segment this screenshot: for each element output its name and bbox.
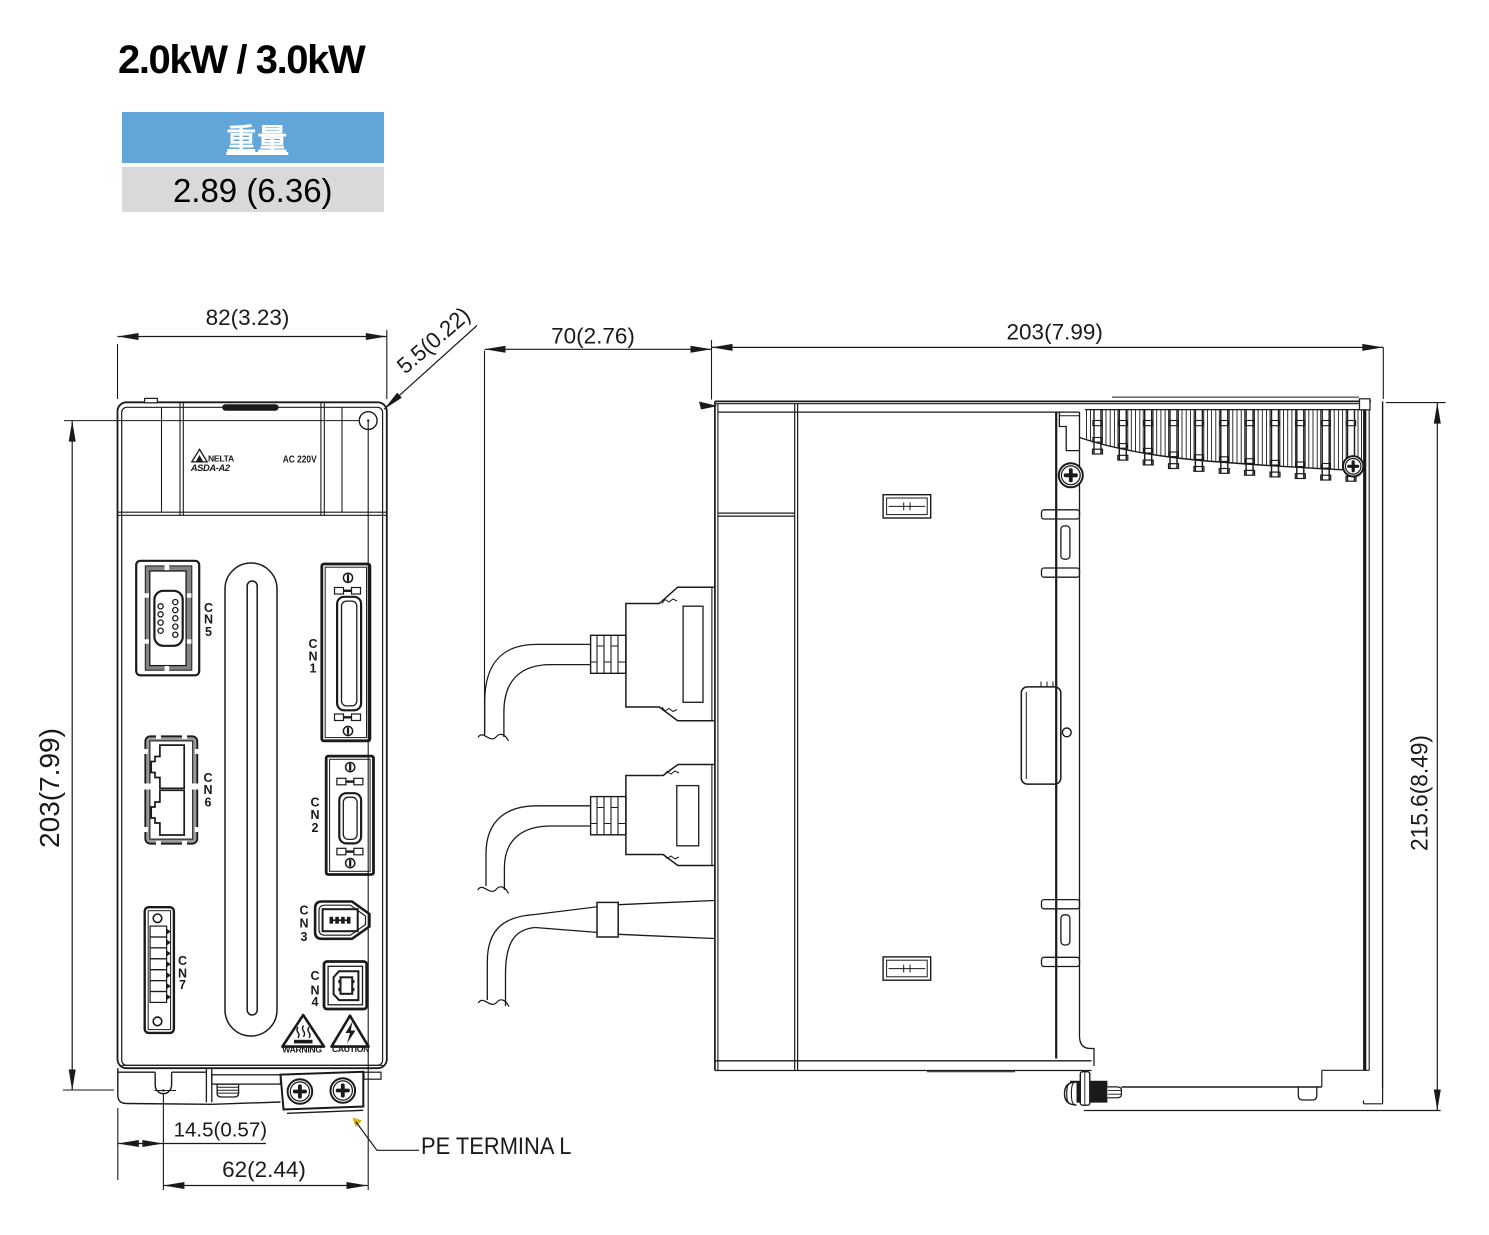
- svg-text:WARNING: WARNING: [282, 1044, 322, 1054]
- svg-text:C: C: [310, 969, 319, 983]
- svg-text:82(3.23): 82(3.23): [206, 305, 290, 330]
- svg-text:203(7.99): 203(7.99): [34, 728, 65, 848]
- svg-text:7: 7: [179, 978, 186, 992]
- svg-text:1: 1: [310, 662, 317, 676]
- svg-text:4: 4: [312, 995, 319, 1009]
- svg-text:C: C: [299, 904, 308, 918]
- svg-text:PE TERMINA L: PE TERMINA L: [421, 1133, 572, 1160]
- svg-text:AC 220V: AC 220V: [283, 454, 317, 465]
- svg-text:N: N: [310, 808, 319, 822]
- svg-text:203(7.99): 203(7.99): [1007, 320, 1103, 345]
- svg-text:CAUTION: CAUTION: [332, 1044, 369, 1054]
- svg-text:5.5(0.22): 5.5(0.22): [392, 302, 475, 379]
- svg-text:215.6(8.49): 215.6(8.49): [1407, 735, 1434, 851]
- svg-text:5: 5: [205, 625, 212, 639]
- svg-text:62(2.44): 62(2.44): [222, 1157, 306, 1182]
- svg-text:2: 2: [312, 821, 319, 835]
- svg-text:3: 3: [301, 930, 308, 944]
- svg-text:N: N: [299, 917, 308, 931]
- svg-text:70(2.76): 70(2.76): [551, 324, 635, 349]
- svg-text:6: 6: [205, 795, 212, 809]
- svg-text:14.5(0.57): 14.5(0.57): [174, 1119, 267, 1142]
- svg-text:ASDA-A2: ASDA-A2: [190, 462, 231, 473]
